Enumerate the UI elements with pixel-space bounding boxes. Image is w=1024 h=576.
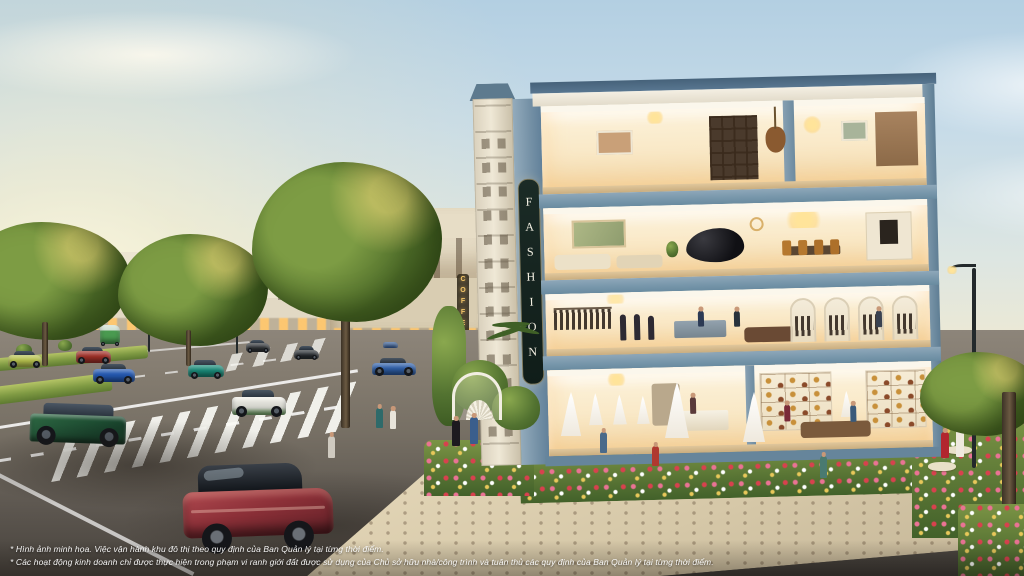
pedestrian xyxy=(820,456,827,478)
floor-2-menswear xyxy=(545,285,930,356)
car-wheel xyxy=(96,376,104,384)
car-wheel xyxy=(404,367,413,376)
wedding-dress xyxy=(612,394,628,424)
car-wheel xyxy=(236,406,247,417)
tree-canopy-large xyxy=(252,162,442,322)
clothing-rack xyxy=(554,307,613,330)
suit-mannequin xyxy=(620,314,627,340)
pedestrian xyxy=(328,436,335,458)
car-blue-small xyxy=(383,340,398,349)
hung-clothes xyxy=(829,315,847,335)
car-wheel xyxy=(264,348,269,353)
car-white-suv xyxy=(232,390,286,417)
car-lime-suv xyxy=(8,351,42,368)
dining-chair xyxy=(830,239,839,254)
car-blue-sedan xyxy=(372,358,416,376)
car-wheel xyxy=(191,372,198,379)
pedestrian xyxy=(390,410,396,429)
landscape-painting xyxy=(572,219,627,248)
shopper xyxy=(784,404,790,421)
car-dark-suv xyxy=(246,340,270,353)
pedestrian xyxy=(652,446,659,466)
car-wheel xyxy=(271,406,282,417)
car-wheel xyxy=(102,357,109,364)
hung-clothes xyxy=(897,313,915,333)
wedding-dress xyxy=(588,393,604,425)
car-red-sedan xyxy=(76,347,111,364)
suit-mannequin xyxy=(648,316,655,340)
bedroom-wall-panel xyxy=(875,111,918,166)
display-arch xyxy=(823,297,850,342)
disclaimer-line-2: * Các hoạt động kinh doanh chỉ được thực… xyxy=(10,556,714,568)
tree-trunk xyxy=(42,322,48,366)
sofa xyxy=(554,254,610,270)
disclaimer: * Hình ảnh minh họa. Việc vận hành khu đ… xyxy=(10,543,714,568)
car-blue xyxy=(93,364,135,384)
wall-monogram xyxy=(749,217,763,231)
gold-mirror xyxy=(803,116,821,134)
fashion-sign-text: FASHION xyxy=(523,194,539,369)
pedestrian xyxy=(376,408,383,428)
shopper xyxy=(876,310,882,327)
garden-gazebo xyxy=(452,372,502,420)
car-wheel xyxy=(214,372,221,379)
pedestrian-red-dress xyxy=(941,432,949,458)
shopper xyxy=(850,405,856,422)
shopper xyxy=(690,397,696,414)
car-body xyxy=(383,342,398,348)
wedding-dress xyxy=(636,396,651,424)
car-dark-suv xyxy=(294,346,319,360)
dining-chair xyxy=(798,240,807,255)
floor-3-lounge-dining xyxy=(543,199,929,280)
car-wheel xyxy=(10,361,17,368)
neon-script-light xyxy=(781,211,825,228)
car-teal xyxy=(188,360,224,379)
pedestrian xyxy=(600,432,607,453)
car-wheel xyxy=(296,355,301,360)
handbag-shelves xyxy=(865,369,926,428)
car-wheel xyxy=(248,348,253,353)
car-wheel xyxy=(78,357,85,364)
hung-clothes xyxy=(795,316,813,336)
median-shrub xyxy=(58,340,72,351)
street-lamp-light xyxy=(946,266,958,274)
wall-art xyxy=(596,130,633,155)
disclaimer-line-1: * Hình ảnh minh họa. Việc vận hành khu đ… xyxy=(10,543,714,555)
indoor-plant xyxy=(666,241,678,257)
grand-piano xyxy=(686,227,745,262)
bus-wheel xyxy=(101,342,105,346)
chandelier xyxy=(605,373,627,386)
car-wheel xyxy=(124,376,132,384)
tree-canopy xyxy=(118,234,268,346)
bedroom-art xyxy=(841,120,867,141)
display-arch xyxy=(891,295,918,340)
pedestrian-black-dress xyxy=(452,420,460,446)
fireplace xyxy=(880,220,899,244)
dining-chair xyxy=(782,240,791,255)
crystal-chandelier xyxy=(603,294,627,304)
chandelier xyxy=(645,111,665,123)
car-wheel xyxy=(375,367,384,376)
shopper xyxy=(734,311,740,327)
boutique-sofa xyxy=(800,420,870,438)
tree-trunk xyxy=(186,330,191,366)
bookshelf xyxy=(709,115,759,180)
shopper xyxy=(698,310,704,326)
car-wheel xyxy=(312,355,317,360)
scene: COFFEE xyxy=(0,0,1024,576)
bus-wheel xyxy=(115,342,119,346)
floor-4-penthouse xyxy=(541,97,927,194)
pedestrian-blue-shirt xyxy=(470,417,478,444)
suit-mannequin xyxy=(634,314,641,340)
corner-shophouse-building: FASHION xyxy=(472,73,952,484)
sofa xyxy=(616,254,662,268)
pedestrian-white-dress xyxy=(956,430,964,457)
car-wheel xyxy=(33,361,40,368)
display-arch xyxy=(789,298,816,343)
hanging-chair xyxy=(765,126,786,152)
dining-chair xyxy=(814,240,823,255)
bus-green xyxy=(100,324,120,346)
hanging-chair-cord xyxy=(774,107,777,129)
